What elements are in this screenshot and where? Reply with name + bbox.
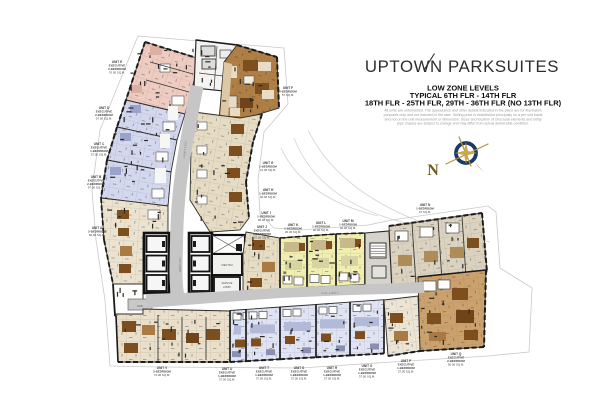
svg-text:purposes only and not included: purposes only and not included in the sa… [384,113,543,117]
svg-text:31.35 SQ.M.: 31.35 SQ.M. [260,168,276,172]
svg-text:SERVICE: SERVICE [222,282,233,285]
svg-text:pipe chases are subject to cha: pipe chases are subject to change and ma… [397,122,529,126]
svg-text:30.36 SQ.M.: 30.36 SQ.M. [313,228,329,232]
svg-text:74.00 SQ.M.: 74.00 SQ.M. [154,373,170,377]
svg-text:30.36 SQ.M.: 30.36 SQ.M. [285,230,301,234]
svg-text:37.00 SQ.M.: 37.00 SQ.M. [219,378,235,382]
svg-text:37.00 SQ.M.: 37.00 SQ.M. [256,377,272,381]
svg-text:57.00 SQ.M.: 57.00 SQ.M. [88,186,104,190]
svg-text:37.00 SQ.M.: 37.00 SQ.M. [324,377,340,381]
svg-text:FCS: FCS [137,304,143,308]
svg-text:and not on the unit measuremen: and not on the unit measurement or dimen… [384,117,541,121]
svg-text:50.00 SQ.M.: 50.00 SQ.M. [448,363,464,367]
svg-text:30.36 SQ.M.: 30.36 SQ.M. [260,195,276,199]
svg-text:LIFT LOBBY: LIFT LOBBY [178,258,182,273]
svg-text:30.36 SQ.M.: 30.36 SQ.M. [258,218,274,222]
svg-text:47 SQ.M.: 47 SQ.M. [419,210,431,214]
svg-text:37.00 SQ.M.: 37.00 SQ.M. [291,377,307,381]
svg-text:30.36 SQ.M.: 30.36 SQ.M. [340,226,356,230]
svg-text:18TH FLR - 25TH FLR, 29TH - 36: 18TH FLR - 25TH FLR, 29TH - 36TH FLR (NO… [365,99,562,108]
svg-text:UPTOWN PARKSUITES: UPTOWN PARKSUITES [365,57,559,76]
svg-text:56.30 SQ.M.: 56.30 SQ.M. [89,233,105,237]
svg-text:57.00 SQ.M.: 57.00 SQ.M. [91,153,107,157]
svg-text:57 SQ.M.: 57 SQ.M. [282,93,294,97]
svg-text:37.00 SQ.M.: 37.00 SQ.M. [254,236,270,240]
svg-text:N: N [427,162,439,179]
svg-text:H A L L W A Y: H A L L W A Y [321,291,338,295]
svg-text:37.00 SQ.M.: 37.00 SQ.M. [398,370,414,374]
svg-text:37.00 SQ.M.: 37.00 SQ.M. [359,375,375,379]
svg-text:MEP RM: MEP RM [221,263,233,267]
svg-text:All units are unfurnished. The: All units are unfurnished. The appearanc… [384,109,542,113]
svg-text:57.00 SQ.M.: 57.00 SQ.M. [96,117,112,121]
svg-text:70.00 SQ.M.: 70.00 SQ.M. [109,71,125,75]
svg-text:LOBBY: LOBBY [223,286,232,289]
